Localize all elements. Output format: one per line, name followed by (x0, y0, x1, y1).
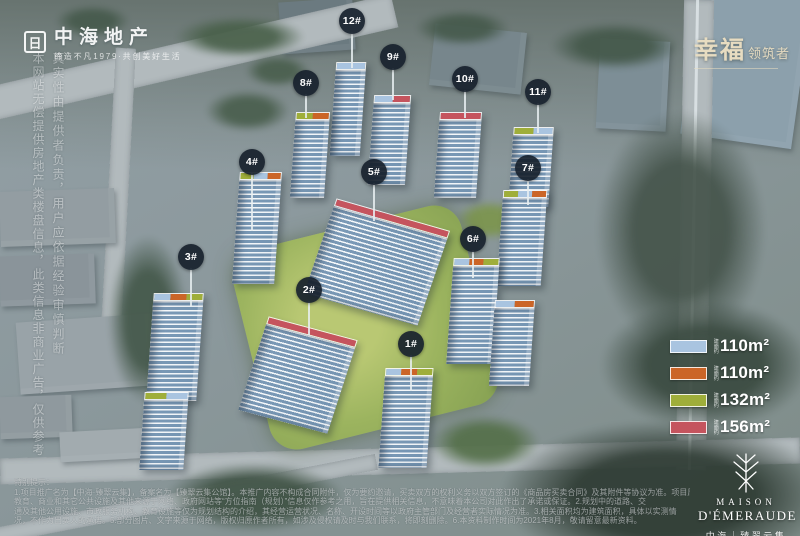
tower-roof (153, 293, 204, 301)
roof-color-segment (401, 369, 417, 375)
unit-area-legend: 建面约110m²建面约110m²建面约132m²建面约156m² (670, 337, 790, 445)
tower-roof (239, 172, 282, 180)
developer-logo: 日 中海地产 缔造不凡1979·共创美好生活 (24, 22, 181, 62)
area-prefix-label: 建面约 (712, 365, 717, 380)
area-type-swatch (670, 340, 707, 353)
roof-color-segment (375, 96, 393, 102)
tower-roof (374, 95, 412, 103)
roof-color-segment (267, 173, 281, 179)
tower-facade (497, 198, 547, 286)
tower-facade (368, 103, 411, 185)
roof-color-segment (386, 369, 402, 375)
slogan-divider (694, 68, 778, 69)
area-type-swatch (670, 421, 707, 434)
tower-roof (144, 392, 189, 400)
tree-cluster (550, 22, 680, 70)
area-prefix-label: 建面约 (712, 338, 717, 353)
building-tower (368, 95, 411, 185)
tree-cluster (430, 415, 540, 470)
tower-roof (503, 190, 548, 198)
developer-logo-icon: 日 (24, 31, 46, 53)
legend-item: 建面约156m² (670, 418, 790, 436)
tree-cluster (175, 16, 305, 58)
area-size-label: 156m² (720, 417, 770, 437)
project-name-en-1: MAISON (698, 497, 794, 507)
legend-item: 建面约110m² (670, 364, 790, 382)
area-prefix-label: 建面约 (712, 392, 717, 407)
tree-cluster (205, 90, 290, 132)
warehouse-roof (59, 428, 150, 463)
tower-roof (494, 300, 535, 308)
roof-color-segment (313, 113, 329, 119)
area-type-swatch (670, 367, 707, 380)
disclaimer-line: 教育、商业和其它公共设施及其他来源于网络、政府网站等“方位指南（规划）”信息仅作… (14, 497, 690, 507)
tower-facade (232, 180, 281, 284)
aerial-masterplan-render: 12#9#8#10#11#4#5#7#6#3#2#1# 日 中海地产 缔造不凡1… (0, 0, 800, 536)
roof-color-segment (154, 294, 170, 300)
roof-color-segment (240, 173, 254, 179)
legend-item: 建面约132m² (670, 391, 790, 409)
building-tower (379, 368, 434, 468)
roof-color-segment (532, 191, 546, 197)
disclaimer-line: 通及其他公用设施、市政服务机构、教育设施等仅为规划结构的介绍，其经营运营状况、名… (14, 507, 690, 517)
roof-color-segment (170, 294, 186, 300)
roof-color-segment (496, 301, 515, 307)
roof-color-segment (469, 259, 484, 265)
legend-item: 建面约110m² (670, 337, 790, 355)
area-prefix-label: 建面约 (712, 419, 717, 434)
roof-color-segment (533, 128, 552, 134)
building-tower (290, 112, 330, 198)
tower-facade (489, 308, 534, 386)
building-tower (434, 112, 482, 198)
project-name-en-2: D'ÉMERAUDE (698, 508, 794, 524)
tower-facade (146, 301, 203, 401)
campaign-slogan: 幸福领筑者 (694, 30, 794, 69)
watermark-column-left: 本网站无偿提供房地产类楼盘信息，此类信息非商业广告，仅供参考 (30, 52, 47, 457)
watermark-column-right: 真实性由提供者负责，用户应依据经验审慎判断 (50, 52, 67, 357)
roof-color-segment (504, 191, 518, 197)
building-tower (232, 172, 282, 284)
slogan-main-text: 幸福 (694, 38, 746, 64)
tower-facade (139, 400, 188, 470)
roof-color-segment (514, 128, 533, 134)
disclaimer-text: 特别提示： 1.项目推广名为【中海·臻翠云集】，备案名为【臻翠云集公馆】。本推广… (14, 478, 690, 526)
tower-roof (453, 258, 500, 266)
roof-color-segment (392, 96, 410, 102)
roof-color-segment (186, 294, 202, 300)
roof-color-segment (515, 301, 534, 307)
tree-cluster (245, 55, 310, 87)
aerial-scene (0, 0, 800, 536)
building-tower (497, 190, 548, 286)
tower-roof (336, 62, 367, 70)
developer-logo-tagline: 缔造不凡1979·共创美好生活 (54, 51, 181, 62)
emerald-tree-emblem-icon (729, 452, 763, 494)
building-tower (489, 300, 535, 386)
area-size-label: 132m² (720, 390, 770, 410)
area-size-label: 110m² (720, 363, 769, 383)
project-logo: MAISON D'ÉMERAUDE 中海｜臻翠云集 (698, 452, 794, 536)
tower-facade (290, 120, 329, 198)
roof-color-segment (145, 393, 166, 399)
tree-cluster (415, 10, 510, 46)
slogan-sub-text: 领筑者 (748, 46, 790, 61)
roof-color-segment (417, 369, 433, 375)
roof-color-segment (454, 259, 469, 265)
developer-logo-text: 中海地产 (54, 22, 181, 49)
disclaimer-title: 特别提示： (14, 478, 690, 488)
roof-color-segment (166, 393, 187, 399)
building-tower (146, 293, 204, 401)
project-name-cn: 中海｜臻翠云集 (698, 529, 794, 536)
roof-color-segment (518, 191, 532, 197)
tower-facade (434, 120, 481, 198)
roof-color-segment (484, 259, 499, 265)
roof-color-segment (441, 113, 481, 119)
tower-facade (379, 376, 433, 468)
tower-facade (330, 70, 366, 156)
area-size-label: 110m² (720, 336, 769, 356)
disclaimer-line: 1.项目推广名为【中海·臻翠云集】，备案名为【臻翠云集公馆】。本推广内容不构成合… (14, 488, 690, 498)
roof-color-segment (297, 113, 313, 119)
tower-roof (385, 368, 434, 376)
roof-color-segment (254, 173, 268, 179)
roof-color-segment (337, 63, 365, 69)
tower-roof (439, 112, 482, 120)
building-tower (139, 392, 188, 470)
disclaimer-line: 况，不作为出卖人的承诺。5.部分图片、文字来源于网络，版权归原作者所有，如涉及侵… (14, 516, 690, 526)
tower-roof (295, 112, 330, 120)
warehouse-roof (0, 253, 96, 306)
area-type-swatch (670, 394, 707, 407)
tower-roof (513, 127, 554, 135)
